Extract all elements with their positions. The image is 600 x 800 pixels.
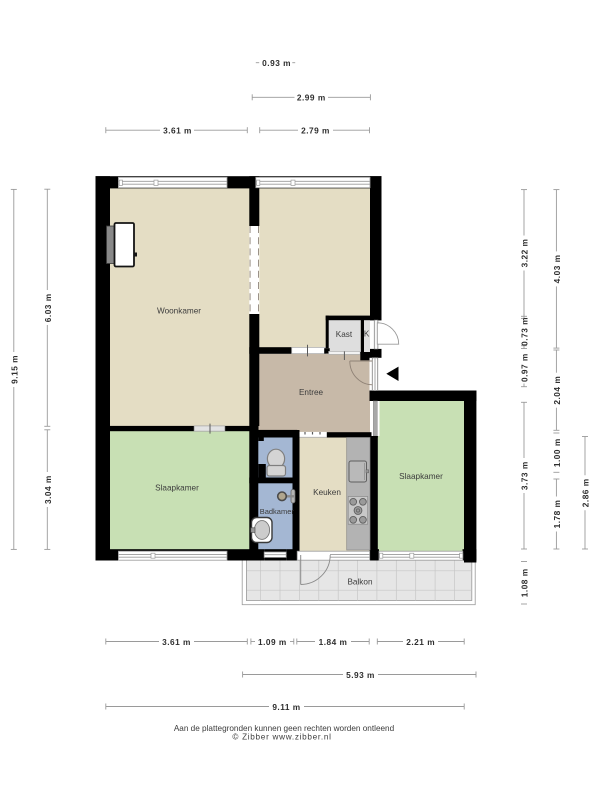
svg-text:Woonkamer: Woonkamer xyxy=(157,307,201,316)
svg-text:5.93 m: 5.93 m xyxy=(346,670,375,680)
svg-text:0.73 m: 0.73 m xyxy=(520,317,530,346)
svg-text:Kast: Kast xyxy=(336,330,353,339)
svg-text:3.73 m: 3.73 m xyxy=(520,461,530,490)
svg-text:1.09 m: 1.09 m xyxy=(258,637,287,647)
svg-text:0.93 m: 0.93 m xyxy=(262,58,291,68)
svg-text:2.99 m: 2.99 m xyxy=(297,93,326,103)
svg-text:3.04 m: 3.04 m xyxy=(43,475,53,504)
svg-text:Badkamer: Badkamer xyxy=(260,507,295,516)
svg-text:Slaapkamer: Slaapkamer xyxy=(155,484,199,493)
svg-text:9.11 m: 9.11 m xyxy=(272,702,300,712)
svg-text:© Zibber www.zibber.nl: © Zibber www.zibber.nl xyxy=(232,733,331,742)
svg-text:2.79 m: 2.79 m xyxy=(301,126,330,136)
svg-text:Balkon: Balkon xyxy=(347,578,372,587)
svg-text:2.04 m: 2.04 m xyxy=(552,376,562,405)
svg-text:1.08 m: 1.08 m xyxy=(520,568,530,597)
svg-text:K: K xyxy=(364,330,370,339)
svg-text:3.61 m: 3.61 m xyxy=(163,126,192,136)
svg-text:9.15 m: 9.15 m xyxy=(10,355,20,384)
svg-text:1.78 m: 1.78 m xyxy=(552,500,562,529)
svg-text:2.86 m: 2.86 m xyxy=(581,478,591,507)
svg-text:Entree: Entree xyxy=(299,388,324,397)
svg-text:Slaapkamer: Slaapkamer xyxy=(399,472,443,481)
svg-text:0.97 m: 0.97 m xyxy=(520,353,530,382)
svg-text:Keuken: Keuken xyxy=(313,488,341,497)
svg-text:3.61 m: 3.61 m xyxy=(162,637,191,647)
svg-text:4.03 m: 4.03 m xyxy=(552,254,562,283)
svg-text:1.00 m: 1.00 m xyxy=(552,438,562,467)
svg-text:3.22 m: 3.22 m xyxy=(520,239,530,268)
svg-text:6.03 m: 6.03 m xyxy=(43,293,53,322)
svg-text:2.21 m: 2.21 m xyxy=(406,637,435,647)
svg-text:1.84 m: 1.84 m xyxy=(319,637,348,647)
